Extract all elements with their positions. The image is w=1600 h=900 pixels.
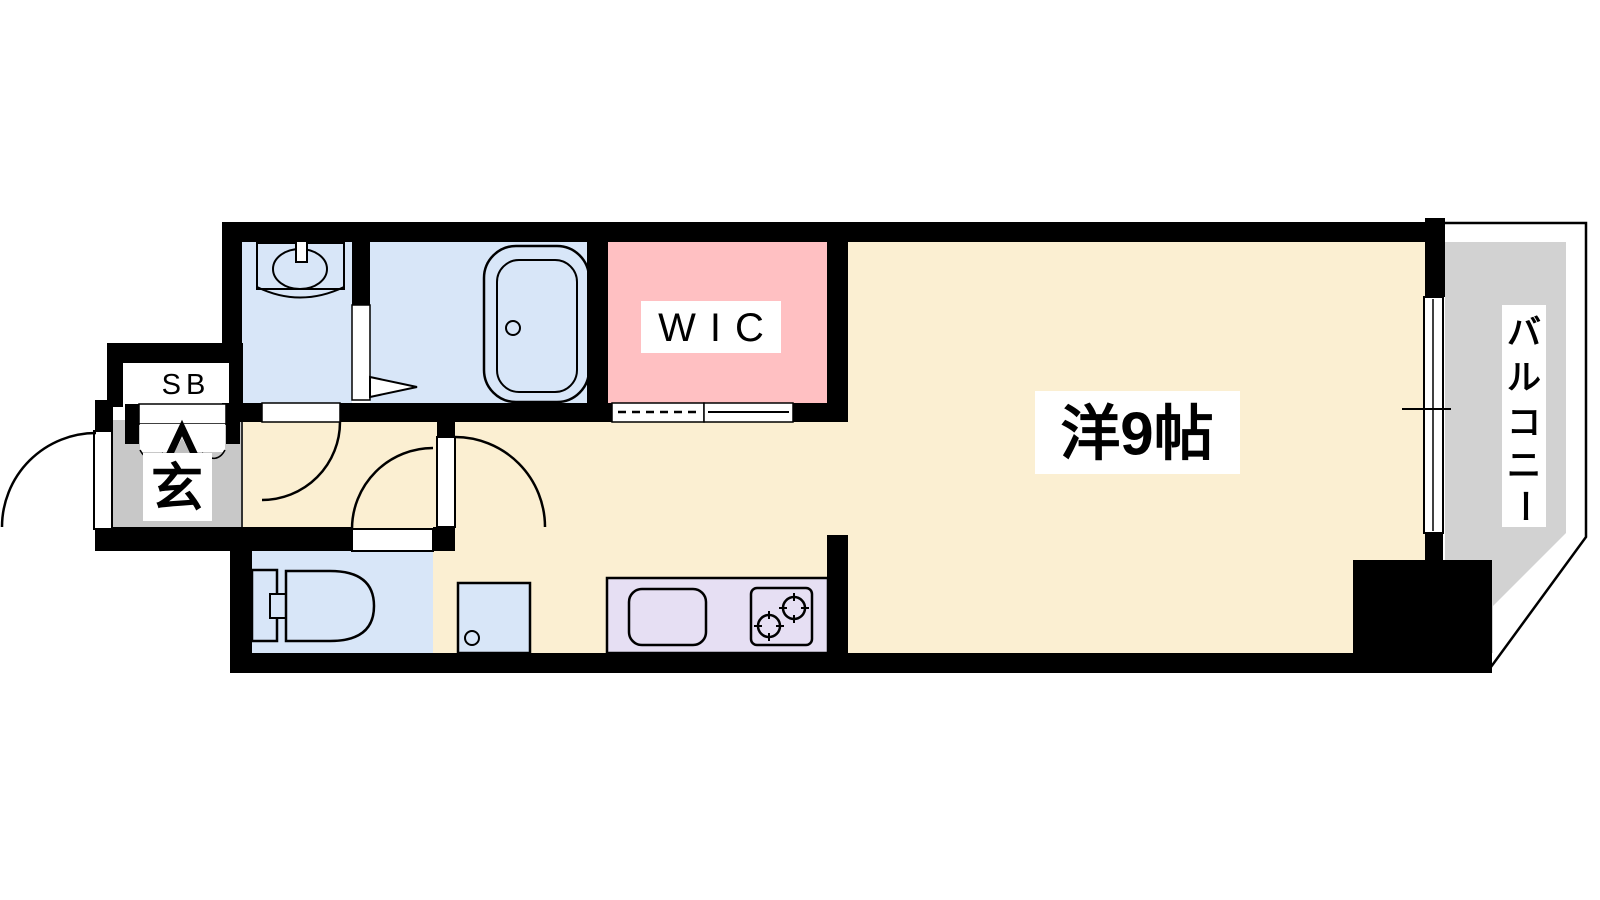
balcony-char-4: ニ — [1507, 447, 1541, 485]
entrance-door — [2, 431, 112, 529]
label-main-room: 洋9帖 — [1035, 391, 1240, 474]
wall-bath-wic-divider — [587, 242, 608, 403]
wall-step-stub-left — [125, 404, 139, 444]
wall-bottom — [230, 653, 1492, 673]
wall-sb-top — [107, 343, 243, 363]
main-room-label: 洋9帖 — [1060, 401, 1213, 468]
label-entrance: 玄 — [143, 453, 212, 521]
wall-sb-right — [229, 363, 243, 407]
balcony-char-1: バ — [1507, 314, 1541, 352]
balcony-char-3: コ — [1507, 404, 1541, 442]
floor-plan-svg: SB 玄 WIC 洋9帖 バ ル コ ニ ー — [0, 0, 1600, 900]
kitchen-counter — [607, 578, 828, 653]
wall-wic-right — [827, 242, 848, 422]
wic-sliding-door — [612, 403, 793, 422]
shoe-box-label: SB — [162, 369, 211, 401]
washroom-floor — [242, 242, 352, 403]
wall-right-below-window — [1425, 533, 1443, 560]
wall-top — [222, 222, 1443, 242]
wall-left-lower — [230, 527, 252, 673]
label-balcony: バ ル コ ニ ー — [1502, 305, 1546, 527]
floor-plan-canvas: SB 玄 WIC 洋9帖 バ ル コ ニ ー — [0, 0, 1600, 900]
wall-right-top — [1425, 218, 1445, 297]
wall-block-southeast — [1353, 560, 1492, 673]
wall-wash-bath-divider — [352, 242, 370, 307]
label-wic: WIC — [641, 301, 781, 353]
bathroom-floor — [370, 242, 587, 403]
balcony-char-5: ー — [1505, 489, 1543, 523]
balcony-char-2: ル — [1507, 359, 1541, 397]
washer-space — [458, 583, 530, 653]
entrance-label: 玄 — [151, 460, 203, 518]
wall-kitchen-stub — [827, 535, 848, 653]
wall-entrance-left-top — [95, 400, 113, 433]
wall-band-a — [222, 403, 262, 422]
wic-label: WIC — [658, 306, 778, 350]
wall-south-inner-left — [95, 527, 352, 551]
wall-left-upper — [222, 222, 242, 363]
wall-south-inner-right — [433, 527, 455, 551]
wall-band-b — [340, 403, 612, 422]
label-shoe-box: SB — [145, 368, 218, 401]
